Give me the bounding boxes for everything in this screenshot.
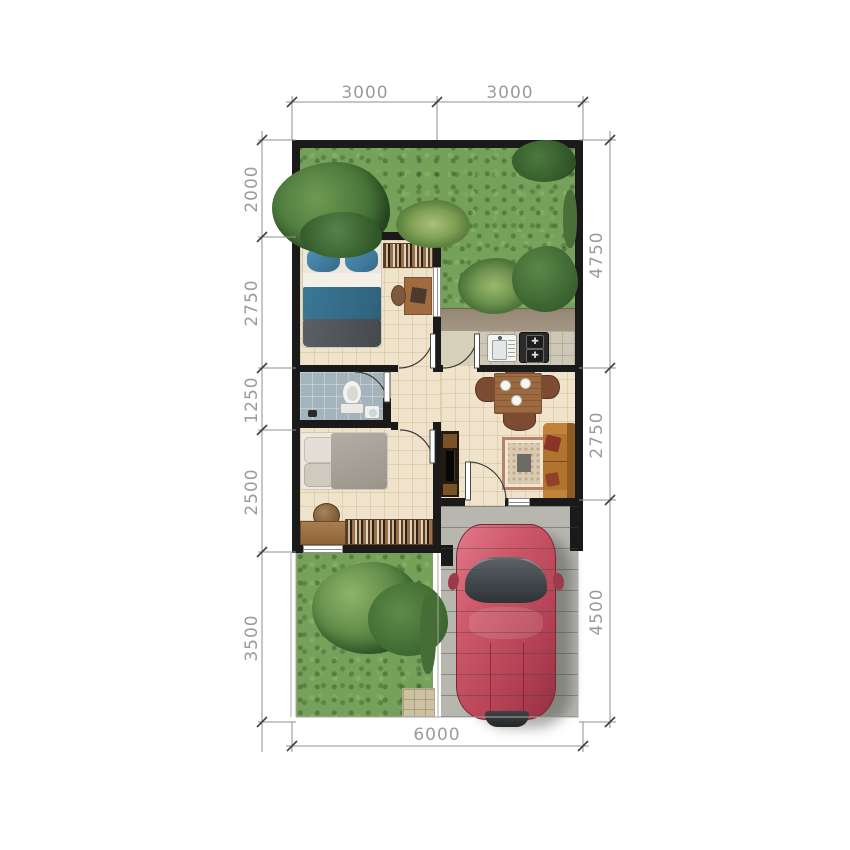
dim-right-4500: 4500 — [587, 577, 607, 647]
dim-bottom-6000: 6000 — [402, 725, 472, 745]
dim-right-2750: 2750 — [587, 400, 607, 470]
dim-left-2500: 2500 — [242, 457, 262, 527]
dimension-ticks — [257, 97, 615, 751]
dim-top-left: 3000 — [330, 83, 400, 103]
dim-top-right: 3000 — [475, 83, 545, 103]
plot-boundary-lines — [291, 551, 578, 717]
dim-right-4750: 4750 — [587, 220, 607, 290]
plan-linework — [0, 0, 850, 850]
dim-left-2750: 2750 — [242, 268, 262, 338]
dim-left-3500: 3500 — [242, 603, 262, 673]
dim-left-1250: 1250 — [242, 365, 262, 435]
floor-plan-canvas: ✚ ✚ — [0, 0, 850, 850]
door-leaves — [384, 334, 480, 500]
dim-left-2000: 2000 — [242, 154, 262, 224]
